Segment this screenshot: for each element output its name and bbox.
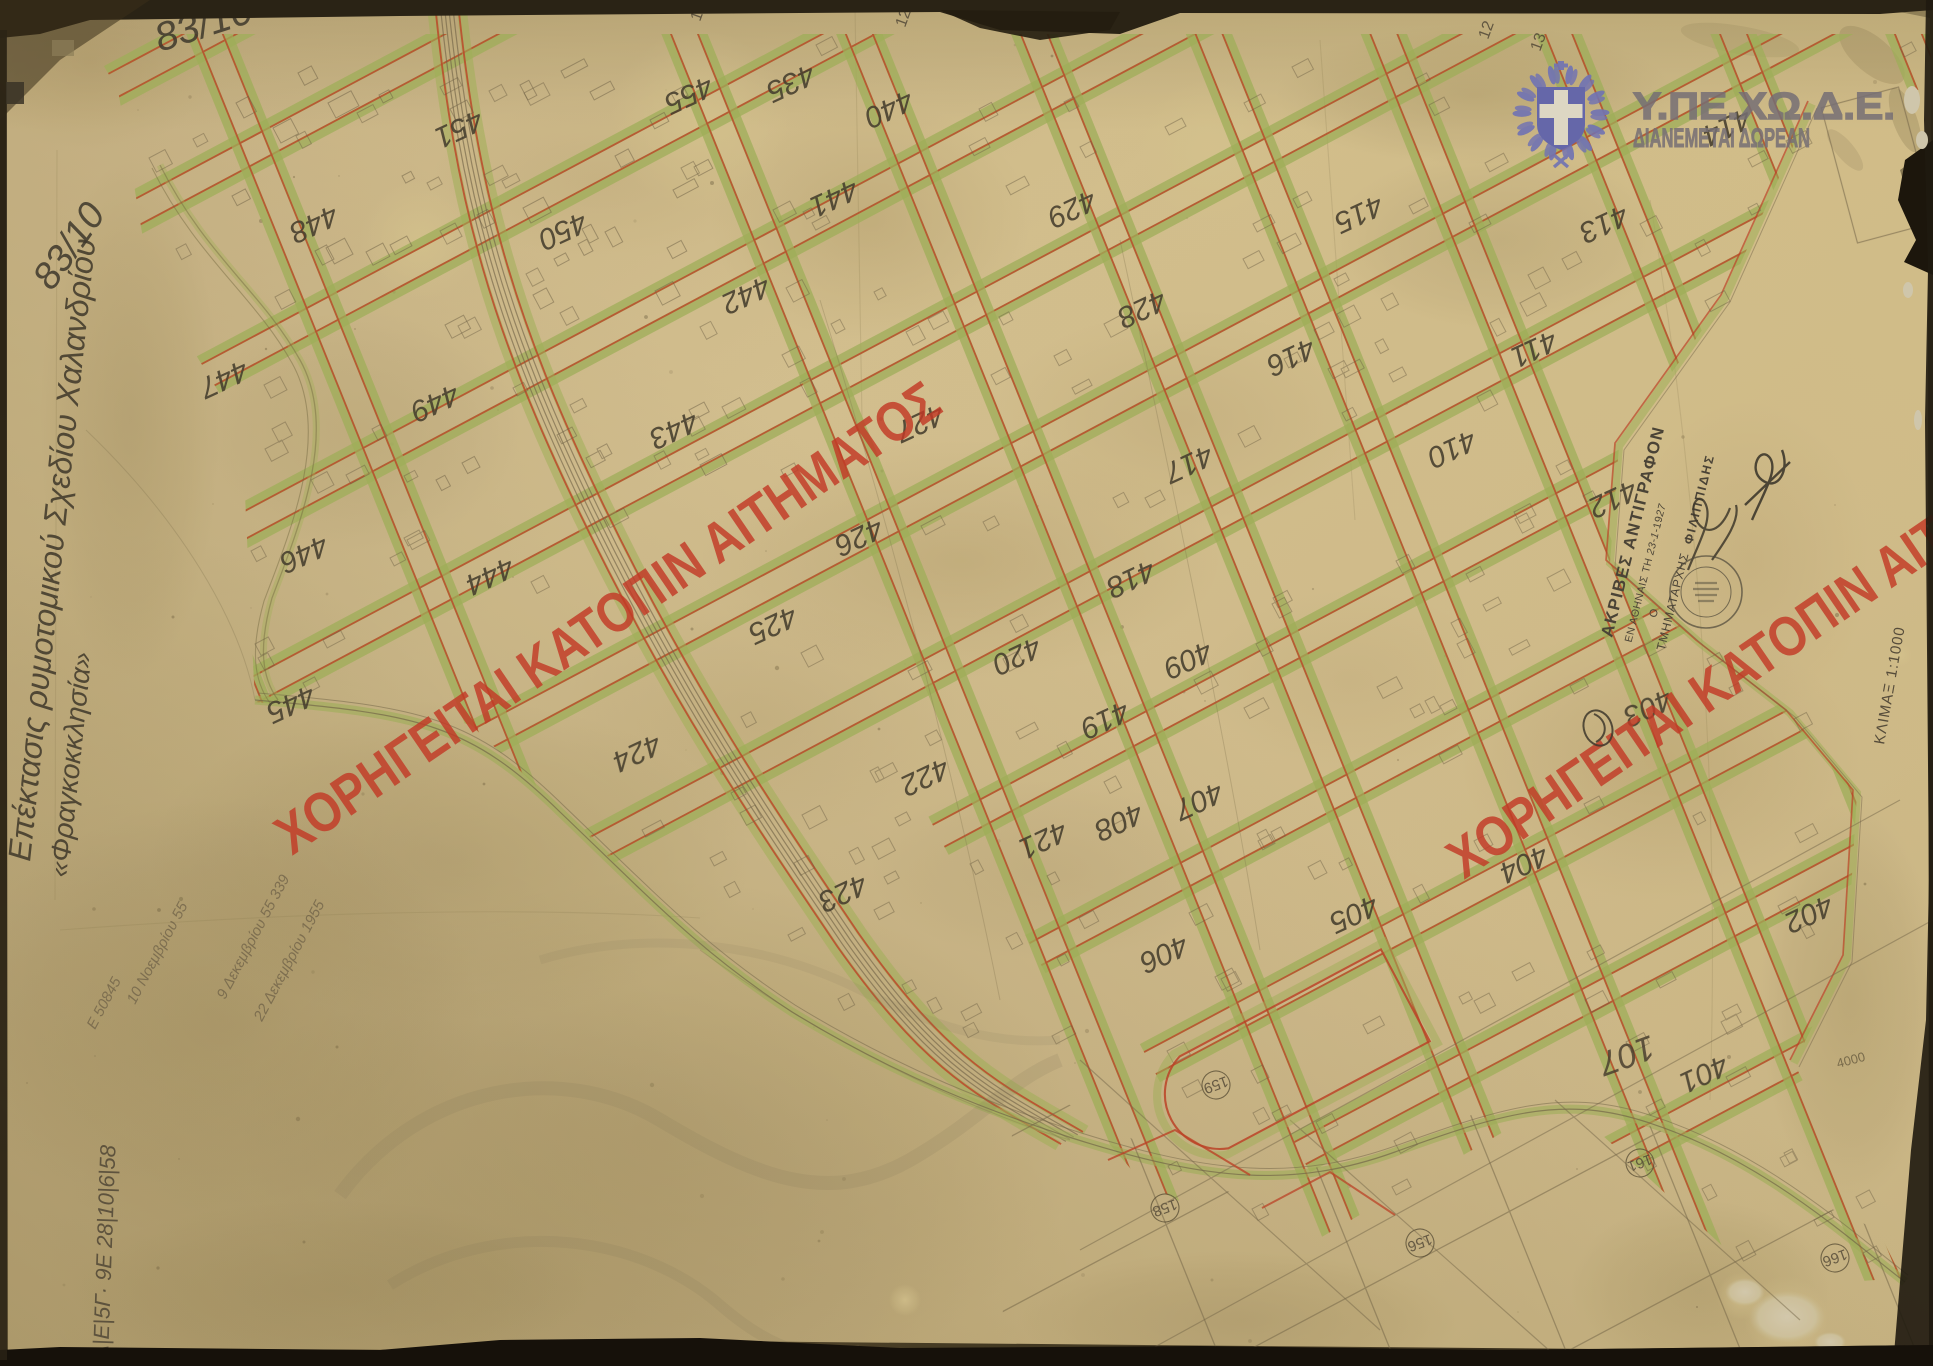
svg-text:Υ.ΠΕ.ΧΩ.Δ.Ε.: Υ.ΠΕ.ΧΩ.Δ.Ε. xyxy=(1633,86,1895,128)
svg-text:ΔΙΑΝΕΜΕΤΑΙ ΔΩΡΕΑΝ: ΔΙΑΝΕΜΕΤΑΙ ΔΩΡΕΑΝ xyxy=(1633,123,1810,153)
